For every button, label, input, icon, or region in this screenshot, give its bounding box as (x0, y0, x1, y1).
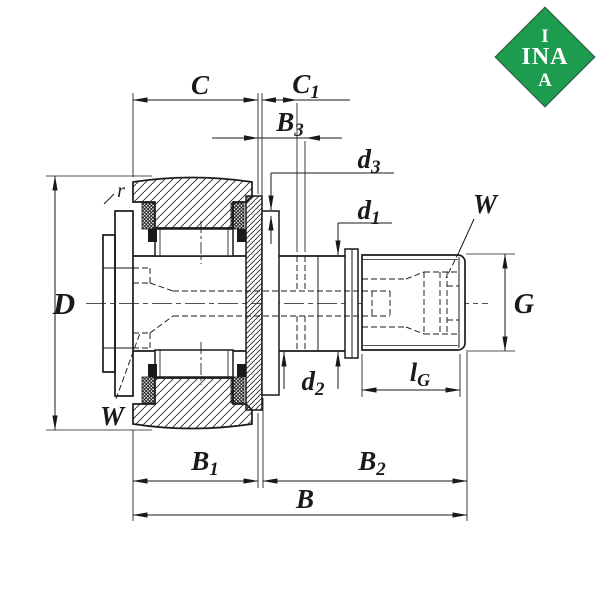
radius-mark (104, 194, 114, 204)
end-washer-right (246, 196, 262, 410)
label-B1: B1 (190, 446, 219, 480)
label-r: r (117, 180, 125, 202)
label-B2: B2 (357, 446, 386, 480)
bearing-part (86, 178, 488, 429)
label-B: B (295, 484, 314, 514)
technical-drawing-cam-follower: C C1 B3 d3 d1 d2 D G lG B1 B2 B W W r I … (0, 0, 600, 600)
label-G: G (514, 289, 534, 320)
ina-logo-line2: INA (521, 44, 568, 70)
label-D: D (52, 286, 75, 321)
seal-top-left (142, 203, 155, 229)
label-B3: B3 (275, 107, 304, 141)
label-C: C (191, 70, 210, 100)
label-C1: C1 (292, 69, 320, 103)
seal-bottom-left (142, 377, 155, 403)
label-d2: d2 (302, 366, 326, 400)
ina-logo: I INA A (495, 7, 595, 107)
stud-shoulder (345, 249, 358, 358)
screenshot-canvas: C C1 B3 d3 d1 d2 D G lG B1 B2 B W W r I … (0, 0, 600, 600)
ina-logo-line3: A (538, 70, 552, 91)
seal-bottom-right (231, 377, 244, 403)
w-leader-bottom (116, 333, 140, 399)
label-W-top: W (473, 189, 499, 219)
label-lG: lG (410, 358, 430, 390)
label-d1: d1 (358, 195, 381, 229)
label-W-bottom: W (100, 401, 126, 431)
thread-section (362, 255, 465, 350)
label-d3: d3 (358, 144, 381, 178)
seal-top-right (231, 203, 244, 229)
